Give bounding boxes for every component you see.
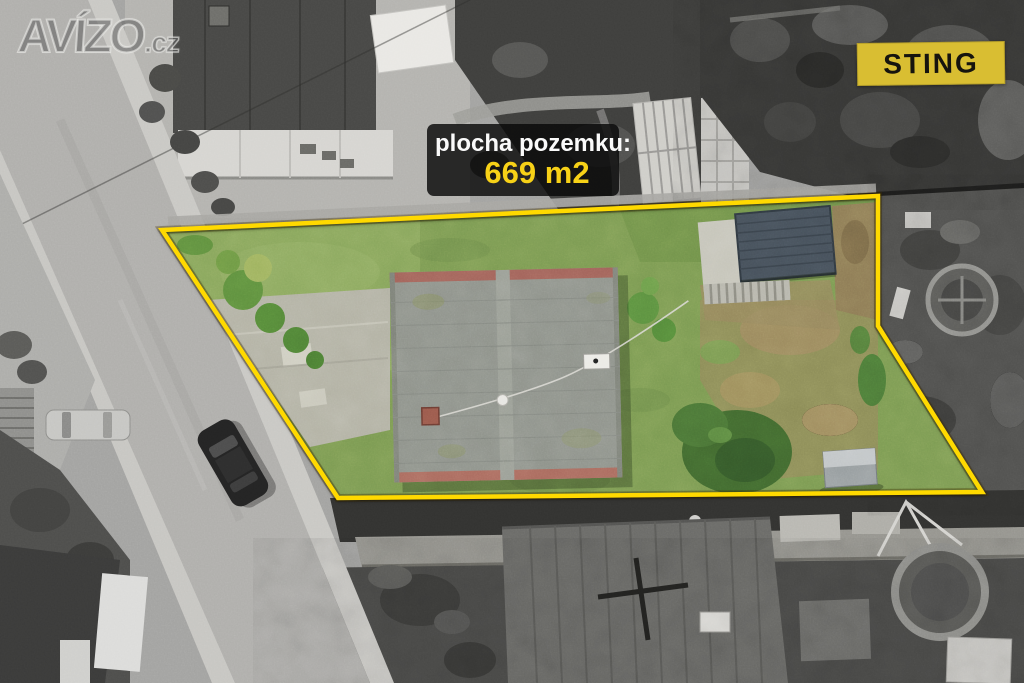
- top-building-roof: [173, 0, 393, 178]
- bottom-house-roof: [502, 518, 788, 683]
- parked-car-silver: [46, 410, 130, 440]
- aerial-photo: [0, 0, 1024, 683]
- sting-agency-badge: STING: [857, 41, 1006, 86]
- plot-area-value: 669 m2: [435, 157, 611, 190]
- chimney: [422, 408, 439, 425]
- plot-area-label: plocha pozemku: 669 m2: [427, 124, 619, 196]
- aerial-listing-photo: AVÍZO.cz STING plocha pozemku: 669 m2: [0, 0, 1024, 683]
- roof-vent: [497, 394, 508, 405]
- greenhouse: [633, 98, 701, 204]
- sting-badge-label: STING: [883, 49, 979, 78]
- plot-area-caption: plocha pozemku:: [435, 131, 611, 157]
